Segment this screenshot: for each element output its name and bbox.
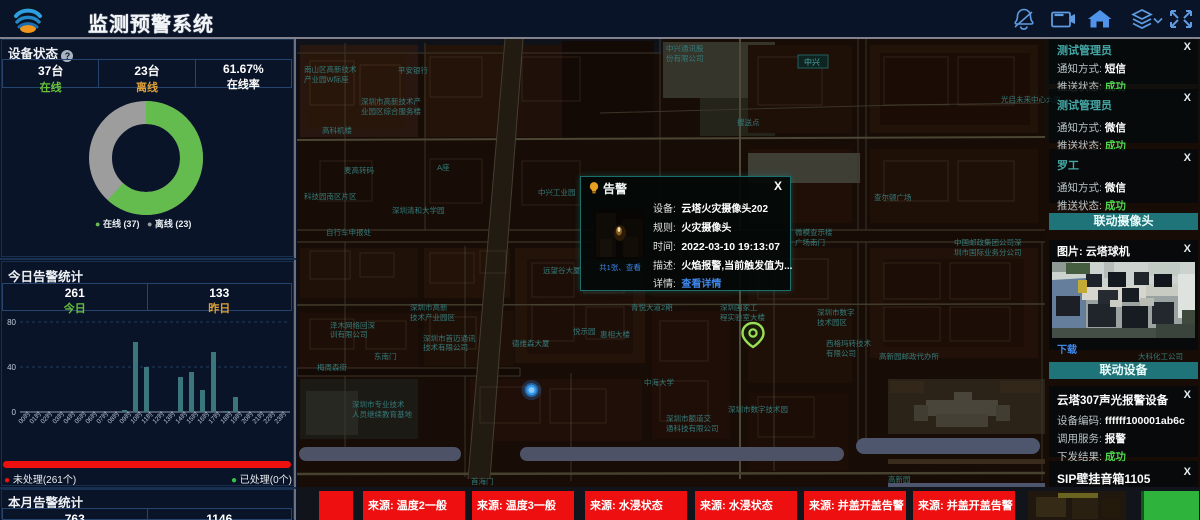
svg-text:技术园区: 技术园区: [817, 317, 847, 327]
svg-text:东南门: 东南门: [374, 351, 397, 361]
svg-text:业园区综合服务楼: 业园区综合服务楼: [361, 106, 421, 116]
svg-text:0: 0: [12, 408, 17, 417]
svg-text:程实验室大楼: 程实验室大楼: [720, 312, 765, 322]
svg-text:训有限公司: 训有限公司: [330, 329, 368, 339]
svg-text:南山区高新技术: 南山区高新技术: [304, 64, 357, 74]
svg-text:深圳国家工: 深圳国家工: [720, 302, 758, 312]
svg-text:份有限公司: 份有限公司: [666, 53, 704, 63]
svg-text:高新园邮政代办所: 高新园邮政代办所: [879, 351, 939, 361]
svg-text:麦高转码: 麦高转码: [344, 165, 374, 175]
svg-text:深圳市专业技术: 深圳市专业技术: [352, 399, 405, 409]
svg-text:悦示园: 悦示园: [573, 326, 596, 336]
svg-text:深圳市首迈通讯: 深圳市首迈通讯: [423, 333, 476, 343]
svg-text:A座: A座: [437, 162, 450, 172]
svg-text:圳市国际业务分公司: 圳市国际业务分公司: [954, 247, 1022, 257]
svg-text:科技园南区片区: 科技园南区片区: [304, 191, 357, 201]
svg-text:80: 80: [7, 318, 16, 327]
svg-text:深圳清和大学园: 深圳清和大学园: [392, 205, 445, 215]
svg-text:人员继续教育基地: 人员继续教育基地: [352, 409, 412, 419]
svg-text:德维森大厦: 德维森大厦: [512, 338, 550, 348]
svg-text:有限公司: 有限公司: [826, 348, 856, 358]
svg-text:中海大学: 中海大学: [644, 377, 674, 387]
svg-text:自行车申报处: 自行车申报处: [326, 227, 371, 237]
svg-text:深圳市高新: 深圳市高新: [410, 302, 448, 312]
svg-text:产业园W际座: 产业园W际座: [304, 74, 349, 84]
svg-text:微模查示楼: 微模查示楼: [795, 227, 833, 237]
svg-text:西格玛转技术: 西格玛转技术: [826, 338, 871, 348]
svg-text:中兴工业园: 中兴工业园: [538, 187, 576, 197]
svg-text:中兴通讯股: 中兴通讯股: [666, 43, 704, 53]
svg-text:平安银行: 平安银行: [398, 65, 428, 75]
svg-text:深圳市数字: 深圳市数字: [817, 307, 855, 317]
svg-text:远望谷大厦: 远望谷大厦: [543, 265, 581, 275]
svg-text:高新园: 高新园: [888, 474, 911, 484]
svg-text:梅周森街: 梅周森街: [317, 362, 347, 372]
svg-text:广场南门: 广场南门: [795, 237, 825, 247]
svg-text:搜送点: 搜送点: [737, 117, 760, 127]
svg-text:青悦大道2期: 青悦大道2期: [631, 302, 673, 312]
svg-text:通科技有限公司: 通科技有限公司: [666, 423, 719, 433]
svg-text:中国邮政集团公司深: 中国邮政集团公司深: [954, 237, 1022, 247]
svg-text:40: 40: [7, 363, 16, 372]
svg-text:高科机楼: 高科机楼: [322, 125, 352, 135]
svg-text:中兴: 中兴: [804, 57, 820, 67]
svg-text:惠相大楼: 惠相大楼: [600, 329, 630, 339]
svg-text:首海门: 首海门: [471, 476, 494, 486]
